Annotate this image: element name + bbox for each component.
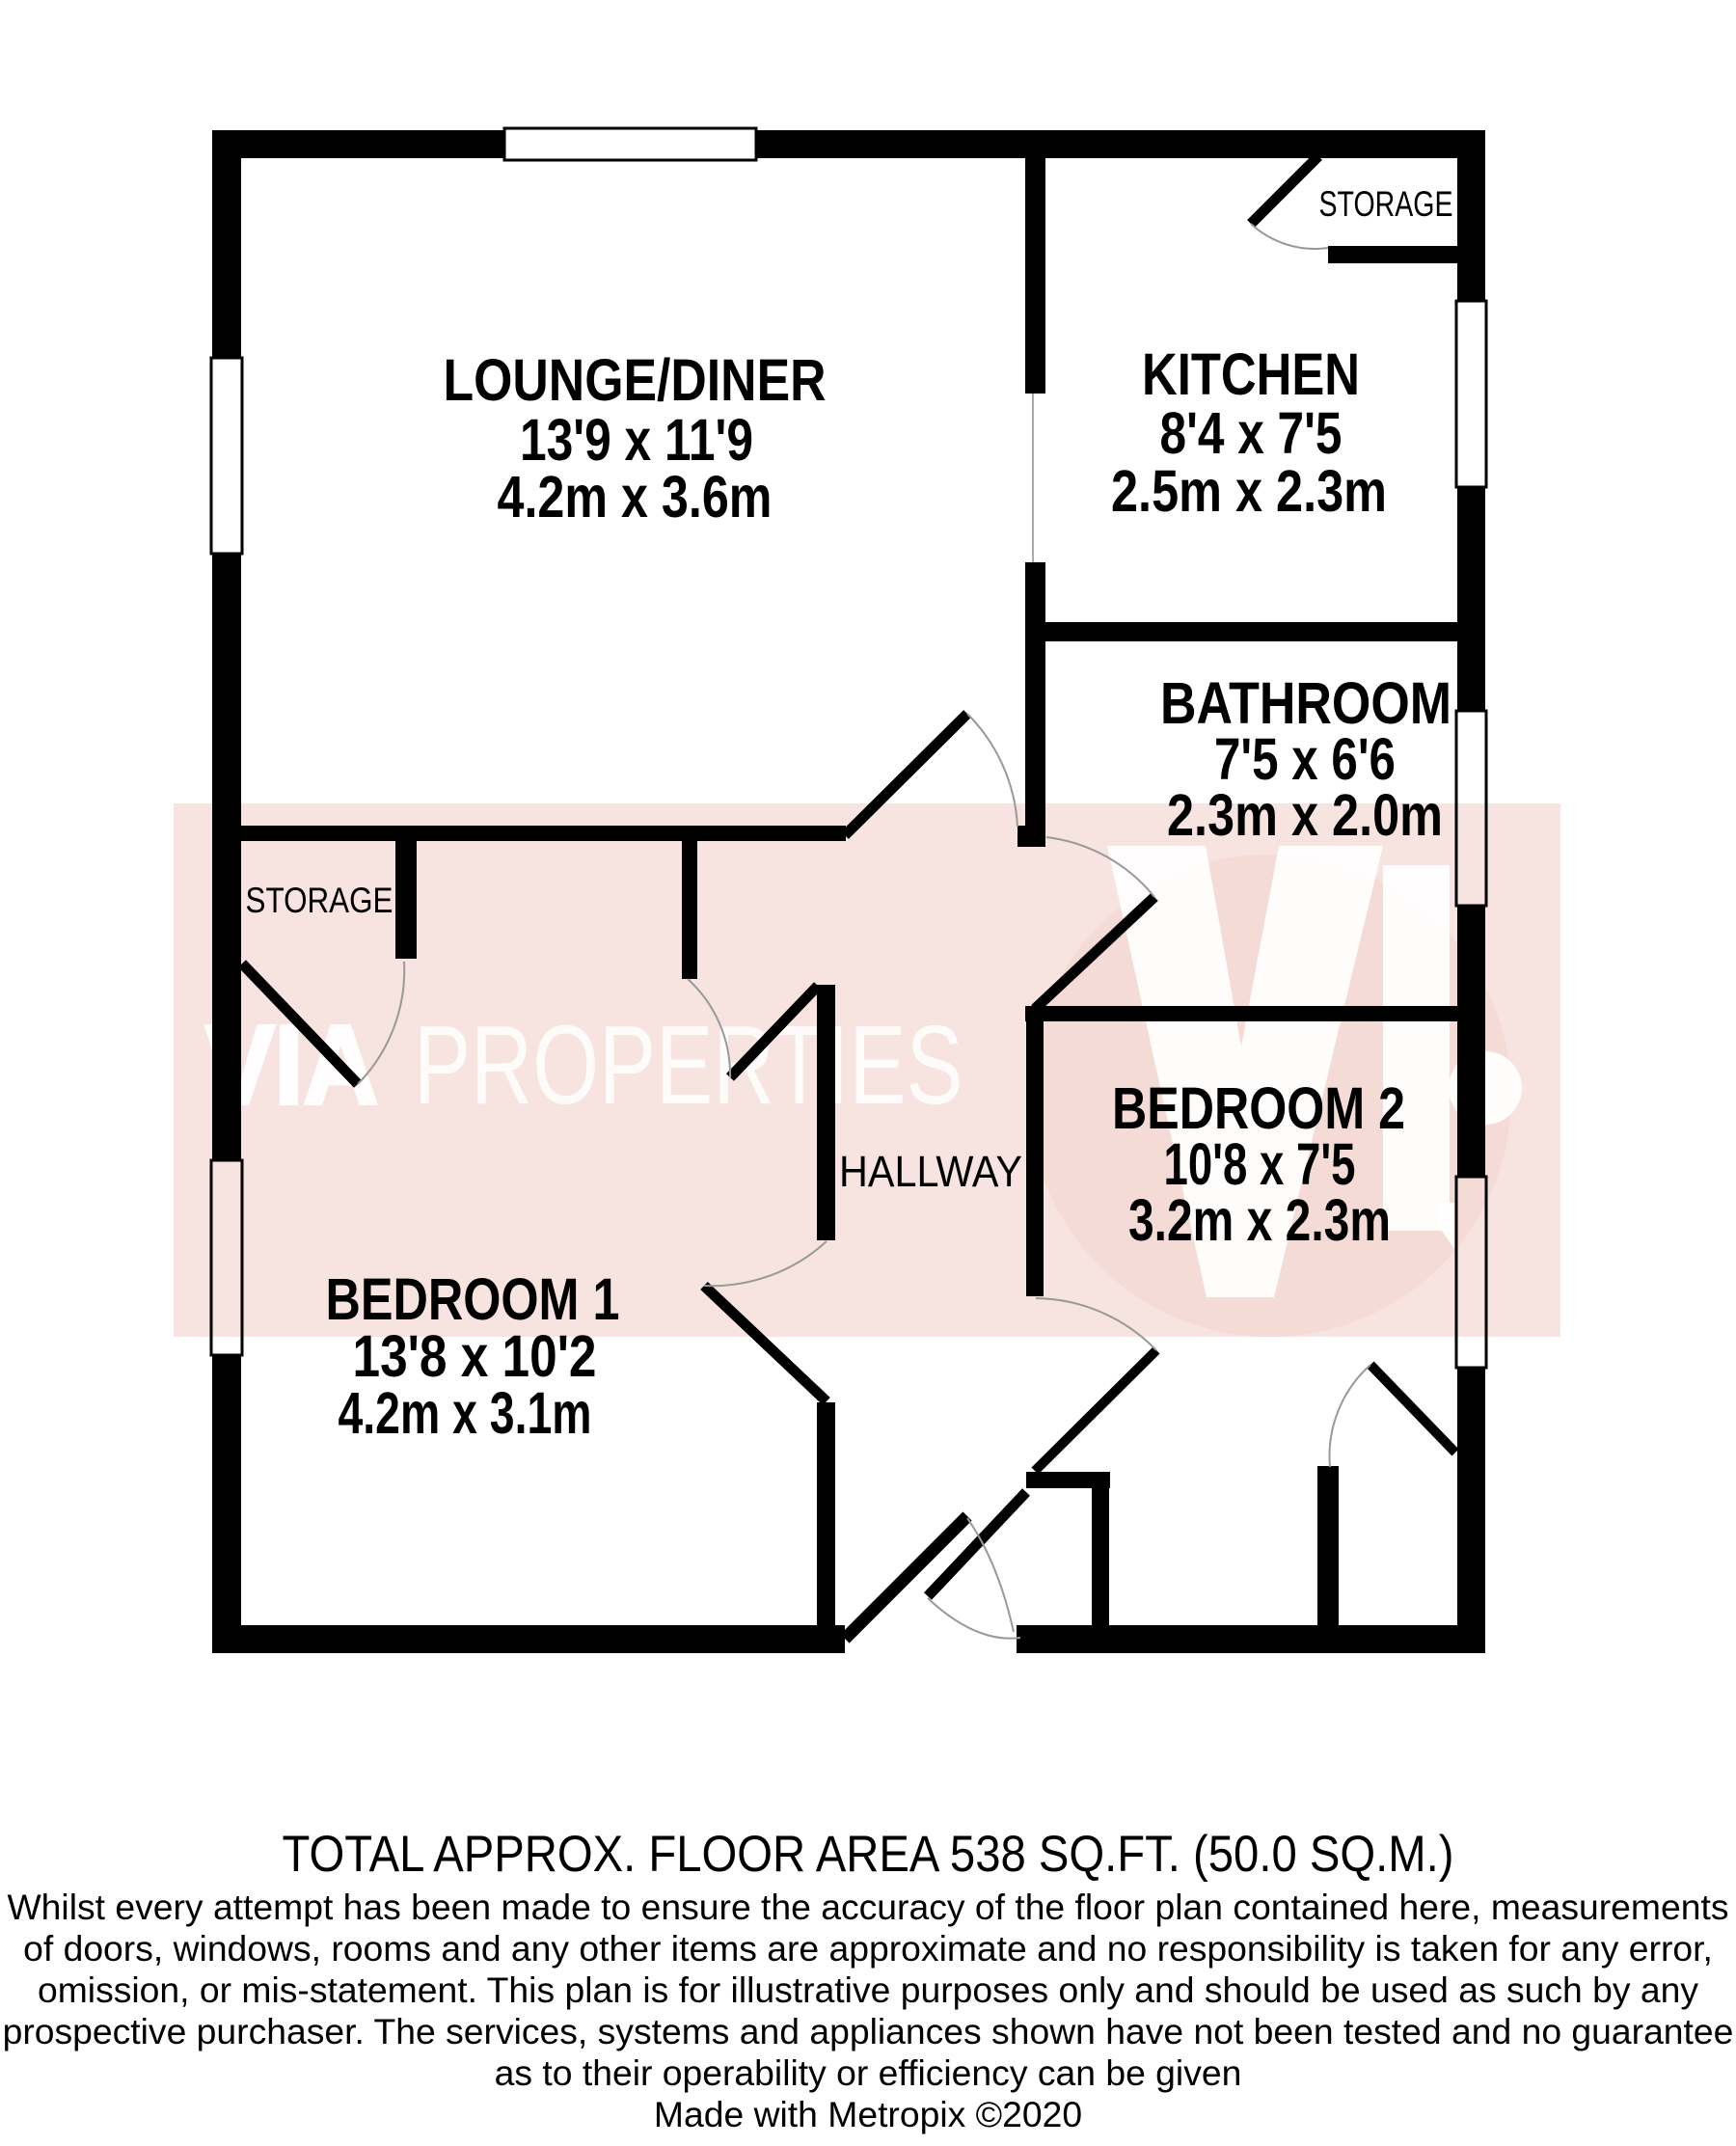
svg-text:HALLWAY: HALLWAY — [839, 1147, 1022, 1196]
svg-text:Whilst every attempt has been: Whilst every attempt has been made to en… — [7, 1887, 1728, 1927]
svg-text:LOUNGE/DINER: LOUNGE/DINER — [444, 347, 827, 413]
svg-text:BEDROOM 1: BEDROOM 1 — [326, 1266, 620, 1332]
svg-text:4.2m x 3.1m: 4.2m x 3.1m — [339, 1380, 592, 1446]
svg-text:13'8 x 10'2: 13'8 x 10'2 — [353, 1323, 597, 1389]
svg-text:8'4 x 7'5: 8'4 x 7'5 — [1160, 400, 1343, 466]
svg-text:13'9 x 11'9: 13'9 x 11'9 — [520, 407, 753, 473]
svg-text:STORAGE: STORAGE — [246, 881, 393, 920]
svg-text:TOTAL APPROX. FLOOR AREA 538 S: TOTAL APPROX. FLOOR AREA 538 SQ.FT. (50.… — [283, 1826, 1454, 1883]
svg-text:of doors, windows, rooms and a: of doors, windows, rooms and any other i… — [23, 1928, 1713, 1969]
svg-text:STORAGE: STORAGE — [1319, 184, 1453, 224]
svg-text:KITCHEN: KITCHEN — [1142, 341, 1360, 407]
svg-text:2.5m x 2.3m: 2.5m x 2.3m — [1111, 458, 1387, 524]
svg-text:4.2m x 3.6m: 4.2m x 3.6m — [498, 464, 773, 530]
svg-text:omission, or mis-statement. Th: omission, or mis-statement. This plan is… — [38, 1969, 1698, 2010]
svg-text:as to their operability or eff: as to their operability or efficiency ca… — [495, 2052, 1242, 2093]
svg-text:Made with Metropix ©2020: Made with Metropix ©2020 — [654, 2094, 1082, 2134]
svg-text:3.2m x 2.3m: 3.2m x 2.3m — [1128, 1187, 1391, 1253]
svg-text:PROPERTIES: PROPERTIES — [414, 1002, 963, 1127]
svg-text:prospective purchaser. The ser: prospective purchaser. The services, sys… — [3, 2011, 1734, 2051]
svg-text:2.3m x 2.0m: 2.3m x 2.0m — [1167, 782, 1443, 848]
